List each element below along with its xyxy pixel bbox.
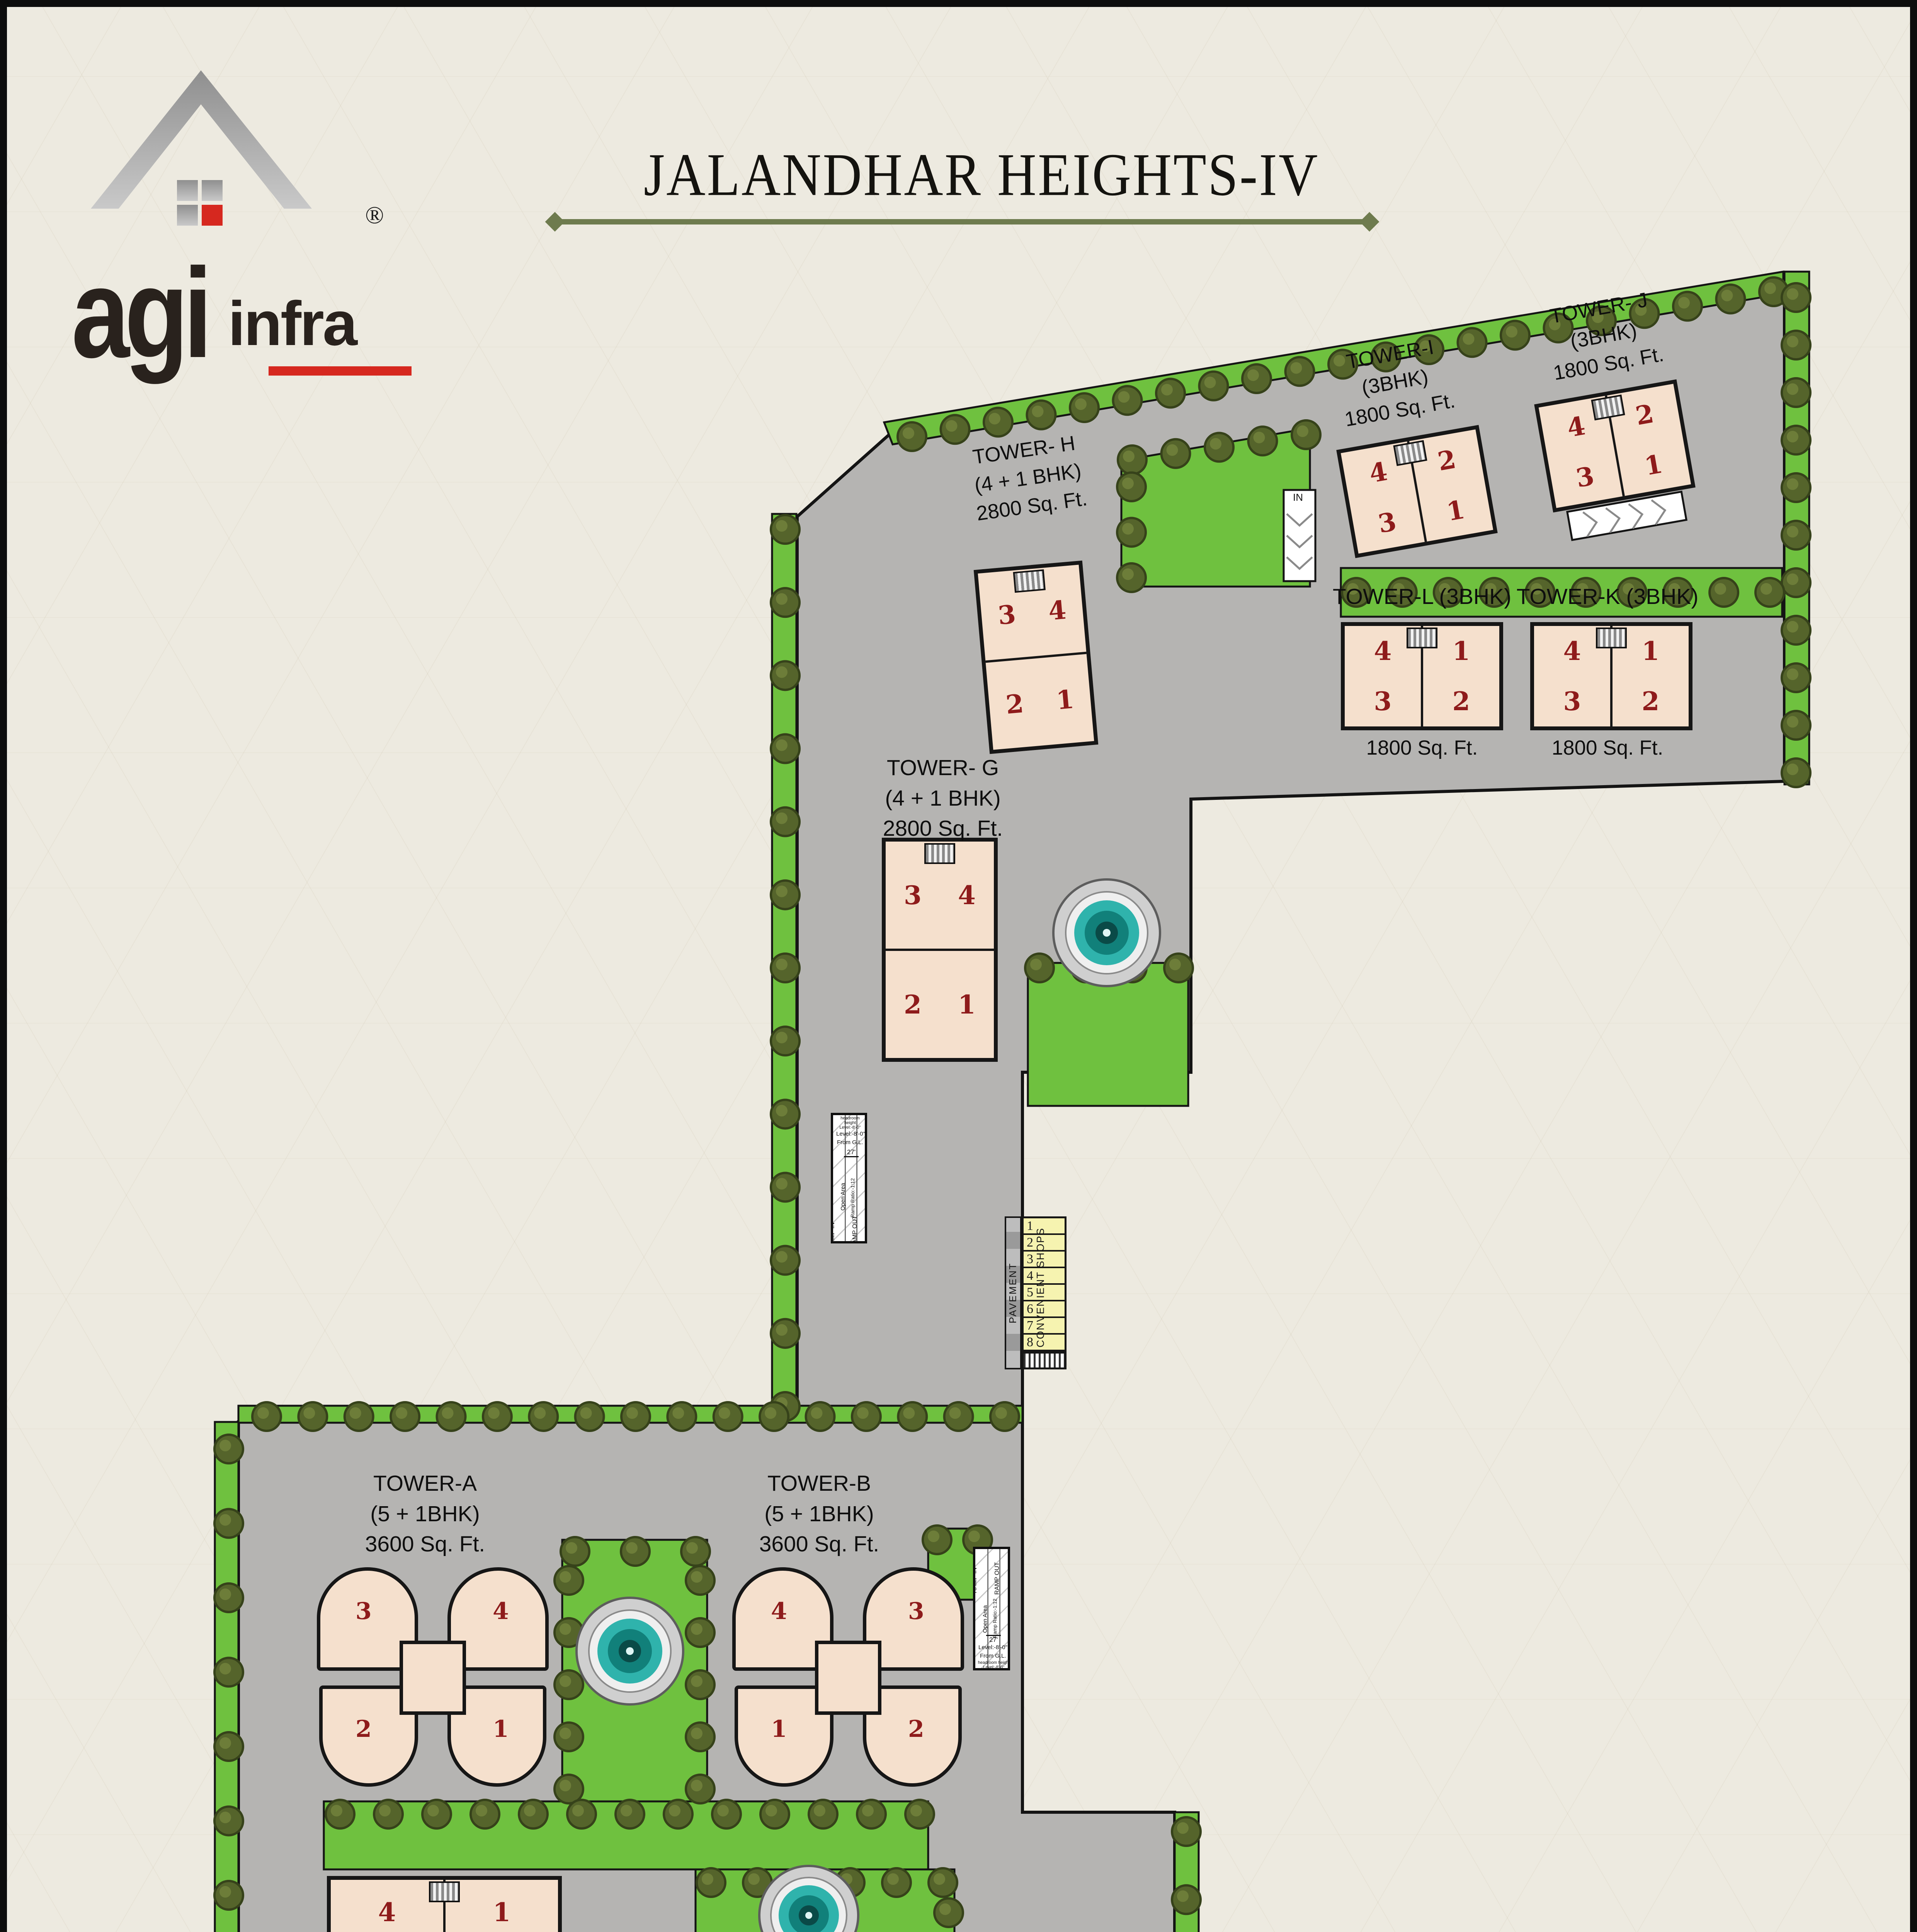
- shops-title: CONVENIENT SHOPS: [1034, 1228, 1046, 1348]
- agi-infra-logo: agi infra ®: [68, 46, 369, 301]
- logo-suffix-text: infra: [228, 288, 356, 360]
- tower-g-label: TOWER- G(4 + 1 BHK)2800 Sq. Ft.: [819, 753, 1067, 844]
- title-rule: [556, 219, 1369, 224]
- logo-window-icon: [177, 180, 223, 226]
- stair-core: [1407, 628, 1437, 648]
- ramp-ratio-label: Ramp Ratio:-1:12: [850, 1178, 856, 1218]
- tower-a-core: [400, 1641, 466, 1715]
- ramp-level-label: Level:-8'-0": [836, 1131, 865, 1137]
- pavement-strip: PAVEMENT: [1005, 1216, 1022, 1369]
- unit-number: 2: [1436, 444, 1458, 477]
- unit-number: 1: [1444, 494, 1467, 527]
- unit-number: 1: [493, 1897, 511, 1927]
- unit-number: 1: [493, 1716, 509, 1743]
- stair-core: [924, 843, 955, 864]
- unit-number: 1: [1642, 449, 1665, 481]
- page-title: JALANDHAR HEIGHTS-IV: [549, 140, 1414, 209]
- unit-number: 2: [908, 1716, 924, 1743]
- tower-g-building: 3 4 2 1: [882, 838, 998, 1062]
- ramp-out-label: RAMP OUT: [852, 1216, 859, 1243]
- unit-number: 4: [1374, 636, 1392, 666]
- ramp-in-label: RAMP IN: [831, 1223, 836, 1243]
- unit-number: 3: [1376, 506, 1398, 539]
- unit-number: 1: [1642, 636, 1660, 666]
- unit-number: 1: [771, 1716, 787, 1743]
- basement-ramp-lower: RAMP IN RAMP OUT Open Area Ramp Ratio:-1…: [973, 1547, 1010, 1670]
- ramp-width-label: 27': [986, 1635, 1001, 1644]
- ramp-ratio-label: Ramp Ratio:-1:12: [992, 1599, 998, 1638]
- ramp-in-label: RAMP IN: [973, 1568, 978, 1593]
- ramp-fromgl-label: From G.L.: [837, 1139, 863, 1146]
- registered-icon: ®: [365, 201, 384, 230]
- tower-h-lower-unit: 2 1: [985, 652, 1094, 750]
- unit-number: 2: [1642, 686, 1660, 716]
- tower-b-building: 4 3 1 2: [732, 1565, 964, 1789]
- logo-brand-text: agi: [71, 240, 208, 386]
- unit-number: 4: [958, 880, 976, 910]
- unit-number: 3: [1563, 686, 1581, 716]
- site-plan-page: agi infra ® JALANDHAR HEIGHTS-IV TOWER- …: [0, 0, 1917, 1932]
- ramp-level-label: Level:-8'-0": [978, 1644, 1007, 1651]
- entry-arrow-in: [1284, 490, 1315, 581]
- unit-number: 2: [1453, 686, 1470, 716]
- tower-l-building: 4 3 1 2: [1341, 622, 1503, 730]
- ramp-open-area-label: Open Area: [840, 1183, 846, 1211]
- unit-number: 4: [1565, 410, 1588, 443]
- unit-number: 4: [1047, 595, 1068, 626]
- unit-number: 4: [1367, 456, 1390, 489]
- unit-number: 3: [904, 880, 922, 910]
- logo-roof-icon: [68, 46, 369, 255]
- unit-number: 1: [958, 990, 976, 1020]
- unit-number: 2: [904, 990, 922, 1020]
- unit-number: 4: [378, 1897, 396, 1927]
- unit-number: 3: [1573, 461, 1596, 493]
- unit-number: 2: [356, 1716, 372, 1743]
- ramp-open-area-label: Open Area: [982, 1605, 988, 1633]
- fountain: [1053, 879, 1160, 986]
- stair-core: [1596, 628, 1627, 648]
- unit-number: 3: [356, 1598, 372, 1625]
- unit-number: 4: [1563, 636, 1581, 666]
- basement-ramp-upper: headroom height Level:-8'-0" Level:-8'-0…: [831, 1113, 867, 1243]
- tower-g-lower-unit: 2 1: [886, 949, 994, 1058]
- tower-h-building: 3 4 2 1: [974, 561, 1099, 754]
- pavement-label: PAVEMENT: [1008, 1262, 1019, 1323]
- unit-number: 4: [493, 1598, 509, 1625]
- ramp-headroom-label: headroom height Level:-8'-0": [978, 1660, 1010, 1670]
- ramp-fromgl-label: From G.L.: [980, 1653, 1006, 1659]
- unit-number: 3: [908, 1598, 924, 1625]
- tower-a-label: TOWER-A(5 + 1BHK)3600 Sq. Ft.: [305, 1468, 545, 1560]
- in-marking: IN: [1293, 492, 1303, 503]
- tower-b-core: [815, 1641, 881, 1715]
- ramp-headroom-label: headroom height Level:-8'-0": [835, 1116, 866, 1130]
- tower-c-building: 4 3 1 2: [327, 1876, 562, 1932]
- unit-number: 2: [1633, 398, 1656, 431]
- ramp-out-label: RAMP OUT: [994, 1562, 1001, 1595]
- tower-k-area-label: 1800 Sq. Ft.: [1484, 736, 1731, 760]
- unit-number: 4: [771, 1598, 787, 1625]
- tower-b-label: TOWER-B(5 + 1BHK)3600 Sq. Ft.: [699, 1468, 939, 1560]
- convenient-shops: PAVEMENT 1 2 3 4 5 6 7 8 CONVENIENT SHOP…: [1005, 1216, 1067, 1371]
- unit-number: 2: [1005, 688, 1025, 720]
- stair-core: [1013, 569, 1046, 593]
- unit-number: 3: [997, 599, 1017, 631]
- unit-number: 1: [1055, 684, 1075, 716]
- logo-underline: [269, 366, 412, 376]
- unit-number: 3: [1374, 686, 1392, 716]
- tower-a-building: 3 4 2 1: [317, 1565, 549, 1789]
- tower-k-building: 4 3 1 2: [1530, 622, 1692, 730]
- ramp-width-label: 27': [844, 1148, 859, 1157]
- unit-number: 1: [1453, 636, 1470, 666]
- shops-stairs: [1022, 1352, 1067, 1369]
- tower-k-label: TOWER-K (3BHK): [1484, 582, 1731, 612]
- stair-core: [429, 1881, 460, 1902]
- fountain: [577, 1598, 683, 1704]
